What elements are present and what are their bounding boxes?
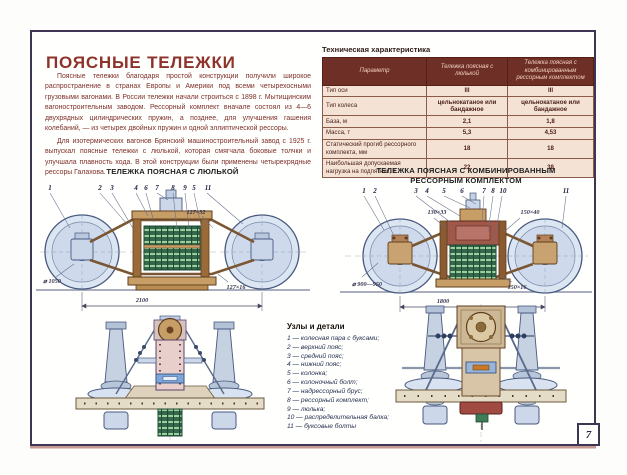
spec-row: База, м 2,1 1,8 (323, 116, 594, 128)
right-drawing-title-line2: РЕССОРНЫМ КОМПЛЕКТОМ (350, 176, 582, 185)
dimension-label: 127×16 (227, 284, 246, 291)
spec-header-row: Параметр Тележка поясная с люлькой Тележ… (323, 58, 594, 86)
spec-table: Параметр Тележка поясная с люлькой Тележ… (322, 57, 594, 178)
callout-number: 11 (205, 184, 212, 192)
spec-param: Тип оси (323, 85, 427, 97)
axlebox-cover (515, 406, 539, 424)
spec-value: III (508, 85, 594, 97)
callout-number: 5 (442, 187, 446, 195)
axlebox-cover (212, 412, 236, 429)
cradle-beam (136, 285, 208, 290)
spec-param: База, м (323, 116, 427, 128)
spec-value: 4,53 (508, 127, 594, 139)
callout-number: 8 (171, 184, 175, 192)
drawing-combined-bogie-side-view (340, 193, 592, 312)
spec-param: Тип колеса (323, 97, 427, 116)
spec-value: цельнокатаное или бандажное (508, 97, 594, 116)
spec-row: Тип колеса цельнокатаное или бандажное ц… (323, 97, 594, 116)
parts-list-item: 2 — верхний пояс; (287, 344, 403, 353)
spec-table-title: Техническая характеристика (322, 45, 430, 54)
spec-col-combined: Тележка поясная с комбинированным рессор… (508, 58, 594, 86)
spec-value: III (427, 85, 508, 97)
parts-list-item: 1 — колесная пара с буксами; (287, 335, 403, 344)
dimension-label: 130×33 (428, 209, 447, 216)
callout-number: 7 (155, 184, 159, 192)
spec-value: 18 (427, 139, 508, 158)
page-title: ПОЯСНЫЕ ТЕЛЕЖКИ (46, 53, 236, 73)
parts-list: 1 — колесная пара с буксами; 2 — верхний… (287, 335, 403, 432)
callout-number: 4 (134, 184, 138, 192)
spec-value: 2,1 (427, 116, 508, 128)
callout-number: 1 (48, 184, 52, 192)
callout-number: 7 (482, 187, 486, 195)
callout-number: 4 (425, 187, 429, 195)
dimension-label: 2100 (136, 297, 148, 304)
callout-number: 11 (563, 187, 570, 195)
drawing-cradle-bogie-side-view (36, 190, 310, 311)
parts-list-item: 5 — колонка; (287, 370, 403, 379)
distribution-beam (76, 398, 264, 409)
right-drawing-title-line1: ТЕЛЕЖКА ПОЯСНАЯ С КОМБИНИРОВАННЫМ (350, 166, 582, 175)
drawing-cradle-bogie-end-view (76, 316, 264, 440)
dimension-label: 150×16 (508, 284, 527, 291)
parts-list-item: 7 — надрессорный брус; (287, 388, 403, 397)
callout-number: 10 (500, 187, 507, 195)
spec-row: Статический прогиб рессорного комплекта,… (323, 139, 594, 158)
dimension-label: 127×32 (187, 209, 206, 216)
parts-legend-title: Узлы и детали (287, 322, 403, 331)
drawing-combined-bogie-end-view (396, 304, 566, 442)
spec-row: Масса, т 5,3 4,53 (323, 127, 594, 139)
callout-number: 3 (414, 187, 418, 195)
spec-value: 1,8 (508, 116, 594, 128)
intro-paragraph: Поясные тележки благодаря простой констр… (45, 72, 311, 135)
dimension-label: ⌀ 900—950 (352, 281, 382, 288)
spring-set (158, 409, 182, 436)
callout-number: 2 (373, 187, 377, 195)
axlebox-cover (104, 412, 128, 429)
dimension-label: 150×40 (521, 209, 540, 216)
spec-value: цельнокатаное или бандажное (427, 97, 508, 116)
parts-list-item: 11 — буксовые болты (287, 423, 403, 432)
callout-number: 8 (491, 187, 495, 195)
parts-list-item: 6 — колоночный болт; (287, 379, 403, 388)
intro-text: Поясные тележки благодаря простой констр… (45, 72, 311, 181)
spec-value: 5,3 (427, 127, 508, 139)
spec-row: Тип оси III III (323, 85, 594, 97)
spring-set (450, 245, 496, 279)
spec-col-cradle: Тележка поясная с люлькой (427, 58, 508, 86)
spec-value: 18 (508, 139, 594, 158)
callout-number: 1 (362, 187, 366, 195)
dimension-label: 1800 (437, 298, 449, 305)
left-drawing-title: ТЕЛЕЖКА ПОЯСНАЯ С ЛЮЛЬКОЙ (55, 167, 290, 176)
spec-col-param: Параметр (323, 58, 427, 86)
page-number: 7 (577, 423, 600, 446)
axlebox-cover (423, 406, 447, 424)
book-page: ПОЯСНЫЕ ТЕЛЕЖКИ Поясные тележки благодар… (0, 0, 627, 475)
dimension-label: ⌀ 1050 (43, 278, 61, 285)
callout-number: 2 (98, 184, 102, 192)
callout-number: 3 (110, 184, 114, 192)
spec-param: Статический прогиб рессорного комплекта,… (323, 139, 427, 158)
parts-list-item: 4 — нижний пояс; (287, 361, 403, 370)
parts-list-item: 8 — рессорный комплект; (287, 397, 403, 406)
callout-number: 9 (183, 184, 187, 192)
callout-number: 5 (192, 184, 196, 192)
spec-param: Масса, т (323, 127, 427, 139)
parts-list-item: 10 — распределительная балка; (287, 414, 403, 423)
parts-legend: Узлы и детали 1 — колесная пара с буксам… (287, 322, 403, 432)
callout-number: 6 (460, 187, 464, 195)
pivot-base (460, 402, 502, 414)
callout-number: 6 (144, 184, 148, 192)
